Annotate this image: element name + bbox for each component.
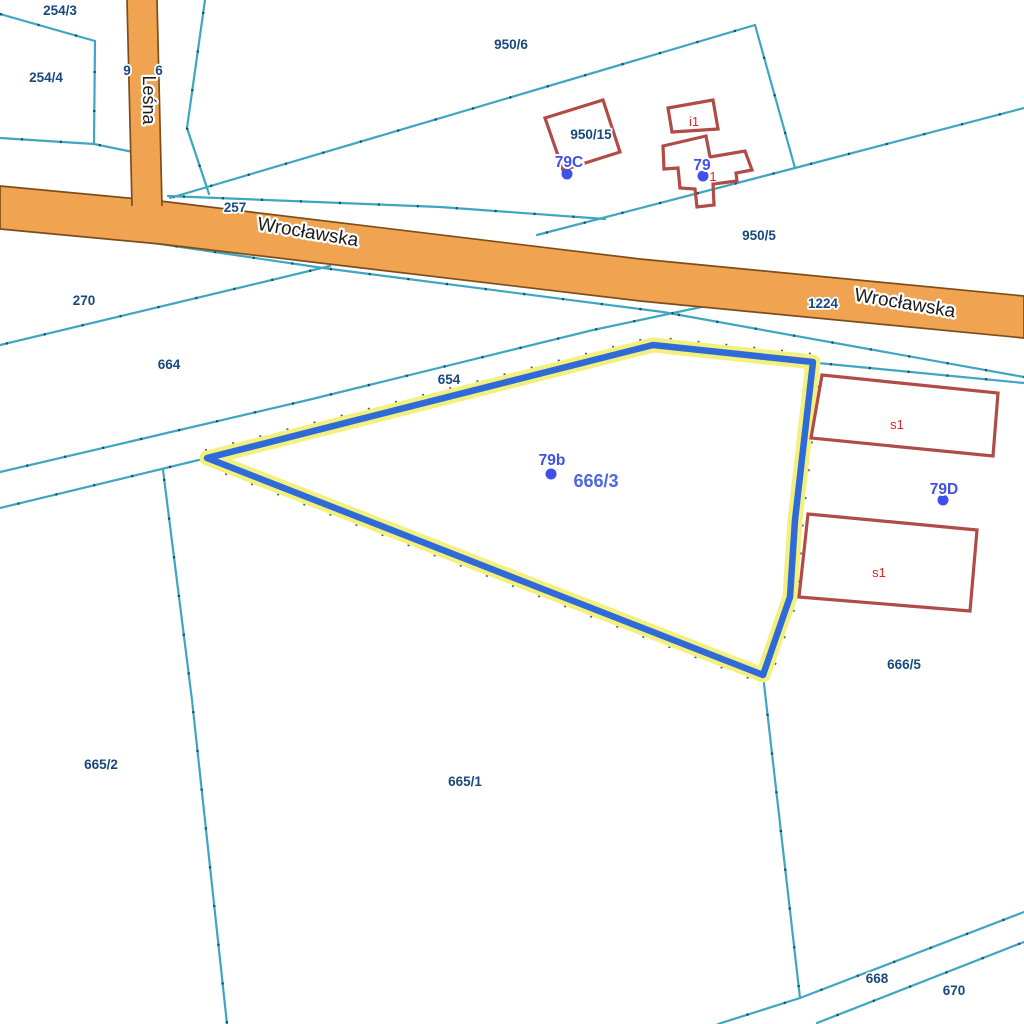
parcel-label-257: 257 <box>224 200 247 215</box>
parcel-boundary-line <box>94 41 95 144</box>
map-canvas[interactable]: 254/3254/496950/6950/15950/5257270664654… <box>0 0 1024 1024</box>
parcel-label-665-2: 665/2 <box>84 757 118 772</box>
address-label-79c: 79C <box>555 154 583 171</box>
parcel-label-270: 270 <box>73 293 96 308</box>
building-label-s1: s1 <box>872 565 886 580</box>
parcel-label-950-5: 950/5 <box>742 228 776 243</box>
parcel-label-670: 670 <box>943 983 966 998</box>
address-label-79b: 79b <box>539 452 566 469</box>
road-label-lesna: Leśna <box>139 75 159 125</box>
address-label-79: 79 <box>693 157 711 174</box>
parcel-label-668: 668 <box>866 971 889 986</box>
address-label-79d: 79D <box>930 481 958 498</box>
address-point-dot <box>546 469 557 480</box>
parcel-label-654: 654 <box>438 372 461 387</box>
parcel-label-950-15: 950/15 <box>570 127 612 142</box>
building-label-i1: i1 <box>689 114 699 129</box>
parcel-label-665-1: 665/1 <box>448 774 482 789</box>
parcel-label-664: 664 <box>158 357 181 372</box>
parcel-label-254-3: 254/3 <box>43 3 77 18</box>
building-label-s1: s1 <box>890 417 904 432</box>
parcel-label-9: 9 <box>123 63 131 78</box>
parcel-label-254-4: 254/4 <box>29 70 63 85</box>
parcel-label-1224: 1224 <box>808 296 839 311</box>
selected-parcel-label: 666/3 <box>573 471 618 491</box>
parcel-label-950-6: 950/6 <box>494 37 528 52</box>
cadastral-map: 254/3254/496950/6950/15950/5257270664654… <box>0 0 1024 1024</box>
parcel-label-666-5: 666/5 <box>887 657 921 672</box>
